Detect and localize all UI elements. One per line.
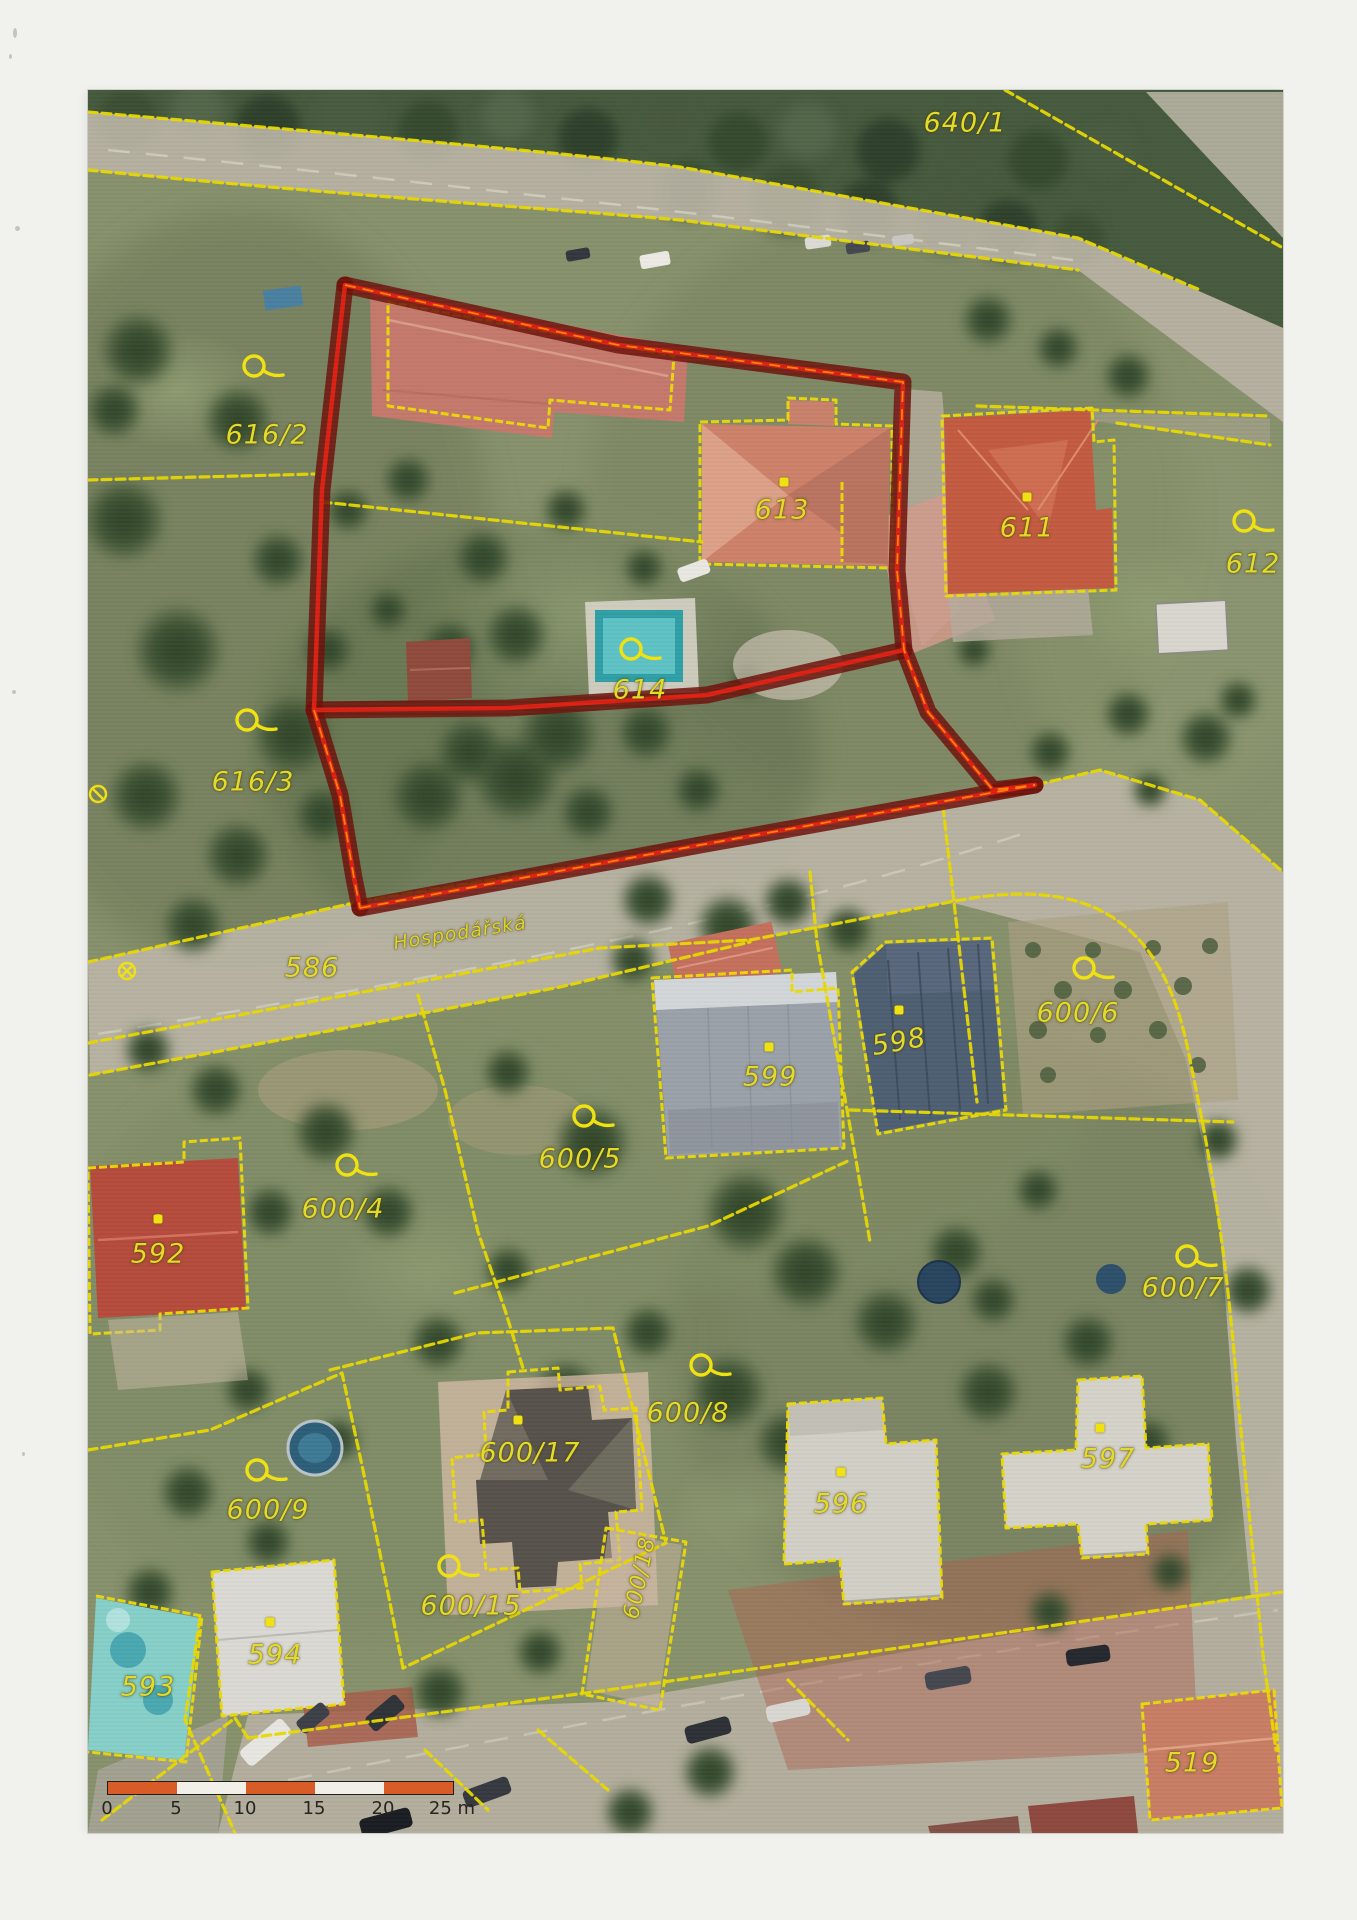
building-519 xyxy=(1142,1690,1282,1820)
scale-bar-tick-label: 5 xyxy=(170,1798,181,1819)
building-shed xyxy=(406,638,472,702)
round-pool xyxy=(918,1261,960,1303)
scan-artifact xyxy=(22,1452,25,1456)
scan-artifact xyxy=(9,54,12,59)
scan-artifact xyxy=(12,690,16,694)
aerial-photo-artwork xyxy=(88,90,1283,1833)
cadastral-orthophoto-map xyxy=(88,90,1283,1833)
scale-bar-segment xyxy=(177,1782,246,1794)
scan-artifact xyxy=(15,226,20,231)
scan-page: 640/1616/2616/3613614611612586599598600/… xyxy=(0,0,1357,1920)
scale-bar-segment xyxy=(384,1782,453,1794)
scale-bar-segment xyxy=(108,1782,177,1794)
scale-bar-tick-label: 15 xyxy=(303,1798,326,1819)
round-pool xyxy=(1096,1264,1126,1294)
scale-bar-tick-label: 0 xyxy=(101,1798,112,1819)
scale-bar xyxy=(107,1781,454,1795)
building-garage-612 xyxy=(1156,600,1229,654)
scale-bar-tick-label: 10 xyxy=(234,1798,257,1819)
scale-bar-segment xyxy=(246,1782,315,1794)
building-599 xyxy=(652,970,844,1158)
scale-bar-tick-label: 20 xyxy=(372,1798,395,1819)
building-594 xyxy=(212,1560,344,1716)
scan-artifact xyxy=(13,28,17,38)
scale-bar-tick-label: 25 m xyxy=(429,1798,475,1819)
orchard-600-6 xyxy=(1008,902,1238,1115)
building-611 xyxy=(942,408,1116,596)
pool-area-593 xyxy=(88,1596,202,1762)
swimming-pool-614 xyxy=(585,598,699,696)
scale-bar-segment xyxy=(315,1782,384,1794)
building-598 xyxy=(852,938,1006,1134)
